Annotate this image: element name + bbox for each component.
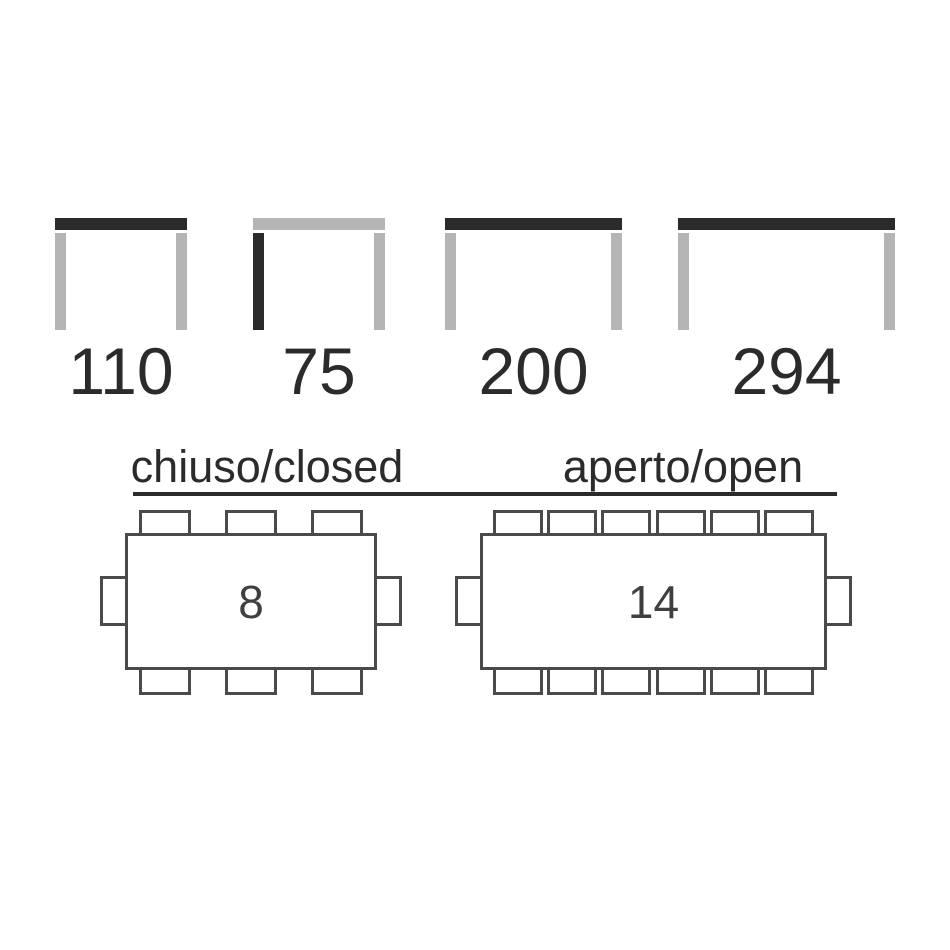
tabletop-bar-highlighted [445, 218, 622, 230]
table-leg-left [678, 233, 689, 330]
dimension-value: 294 [618, 338, 950, 404]
open-heading: aperto/open [563, 442, 803, 492]
elevation-diagram-200: 200 [445, 218, 622, 418]
tabletop-bar-highlighted [678, 218, 895, 230]
elevation-diagram-110: 110 [55, 218, 187, 418]
closed-table-plan: 8 [125, 533, 377, 670]
seat-count: 14 [628, 579, 679, 625]
table-leg-left [445, 233, 456, 330]
table-surface: 14 [480, 533, 827, 670]
table-surface: 8 [125, 533, 377, 670]
table-leg-right [611, 233, 622, 330]
furniture-dimension-diagram: 110 75 200 294 chiuso/closed aperto/open… [0, 0, 950, 950]
table-leg-right [374, 233, 385, 330]
tabletop-bar-highlighted [55, 218, 187, 230]
table-leg-right [884, 233, 895, 330]
tabletop-bar [253, 218, 385, 230]
elevation-diagram-294: 294 [678, 218, 895, 418]
table-leg-right [176, 233, 187, 330]
closed-heading: chiuso/closed [131, 442, 404, 492]
table-leg-left [55, 233, 66, 330]
seat-count: 8 [238, 579, 264, 625]
table-leg-left-highlighted [253, 233, 264, 330]
heading-underline [133, 492, 837, 496]
elevation-diagram-75: 75 [253, 218, 385, 418]
open-table-plan: 14 [480, 533, 827, 670]
